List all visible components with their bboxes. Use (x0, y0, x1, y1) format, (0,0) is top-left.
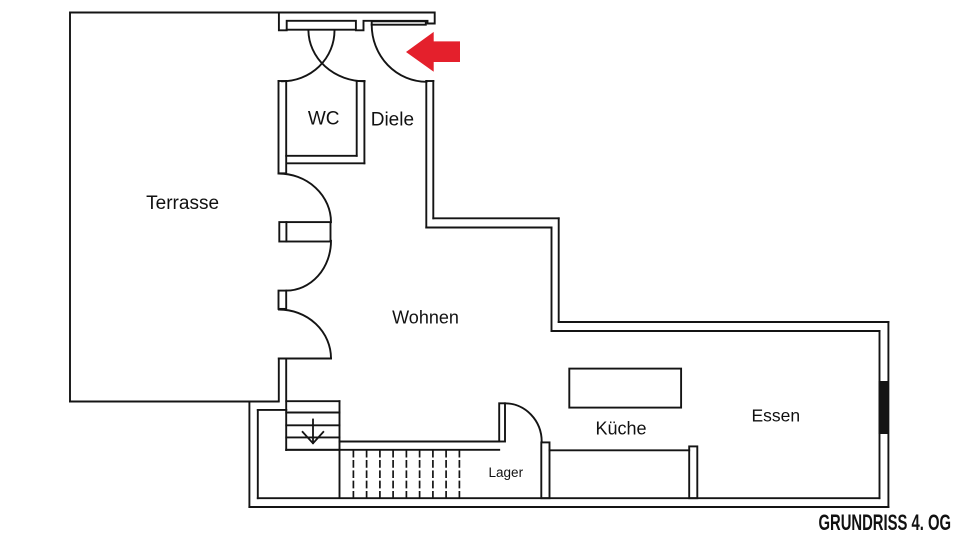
svg-text:GRUNDRISS 4. OG: GRUNDRISS 4. OG (818, 510, 951, 535)
svg-text:Diele: Diele (371, 110, 414, 131)
svg-text:Terrasse: Terrasse (146, 193, 219, 214)
svg-text:WC: WC (308, 108, 340, 129)
svg-text:Essen: Essen (751, 406, 800, 426)
svg-text:Lager: Lager (489, 465, 524, 480)
svg-text:Küche: Küche (595, 419, 646, 439)
svg-text:Wohnen: Wohnen (392, 308, 459, 328)
